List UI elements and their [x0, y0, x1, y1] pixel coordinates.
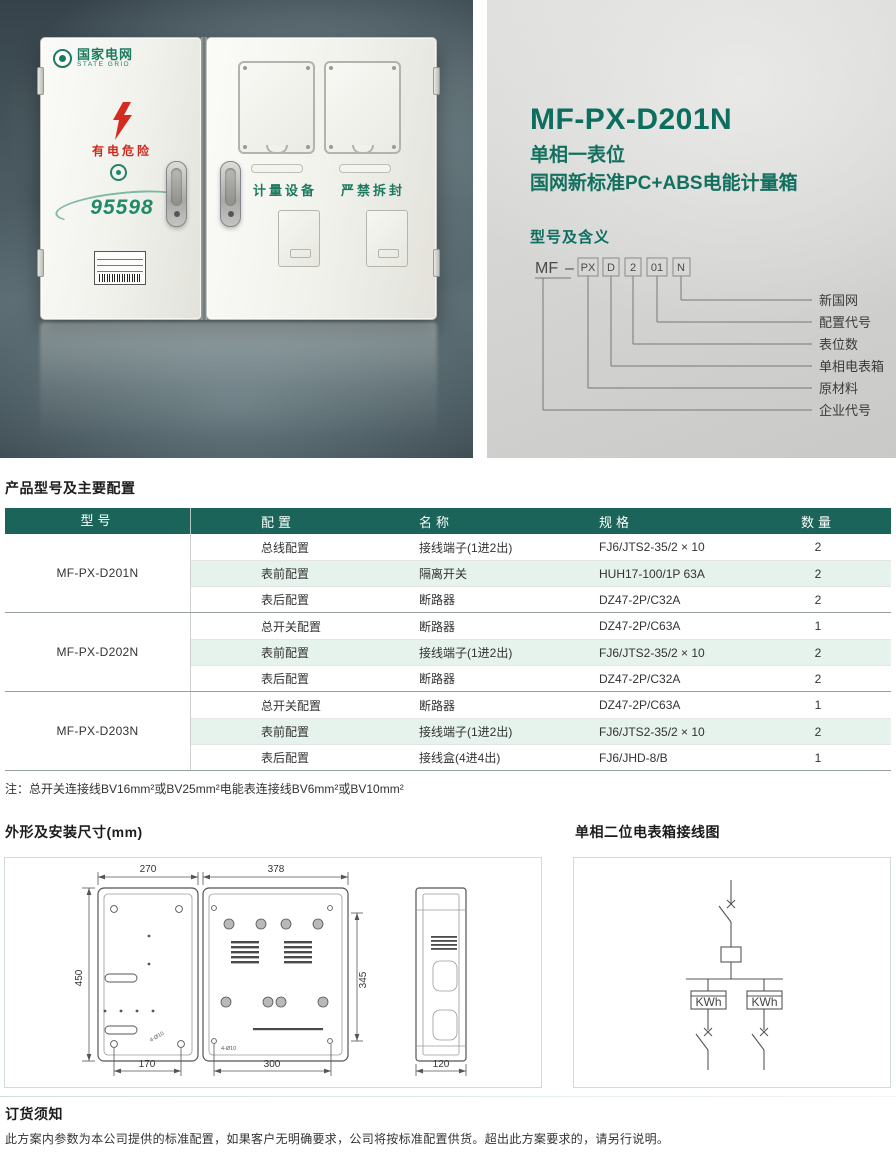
table-group: MF-PX-D201N总线配置接线端子(1进2出)FJ6/JTS2-35/2 ×… — [5, 534, 891, 612]
table-row: 总开关配置断路器DZ47-2P/C63A1 — [191, 692, 891, 718]
dim-inner-height: 345 — [358, 971, 369, 988]
table-cell: 2 — [745, 540, 891, 554]
table-cell: 接线盒(4进4出) — [415, 749, 595, 766]
header-model: 型号 — [5, 508, 191, 534]
table-cell: 2 — [745, 646, 891, 660]
logo-text-cn: 国家电网 — [77, 48, 133, 61]
meter-label-2: KWh — [751, 995, 777, 1009]
meter-box-right-door: 计量设备 严禁拆封 — [206, 37, 437, 320]
table-cell: 断路器 — [415, 591, 595, 608]
meter-box: 国家电网 STATE GRID 有电危险 95598 — [40, 37, 437, 320]
header-spec: 规格 — [595, 512, 745, 531]
config-table-header: 型号 配置 名称 规格 数量 — [5, 508, 891, 534]
model-cell: MF-PX-D203N — [5, 692, 191, 770]
config-table: 型号 配置 名称 规格 数量 MF-PX-D201N总线配置接线端子(1进2出)… — [5, 508, 891, 771]
product-info-panel: MF-PX-D201N 单相一表位 国网新标准PC+ABS电能计量箱 型号及含义… — [487, 0, 896, 458]
hinge — [433, 67, 440, 95]
table-cell: 总开关配置 — [191, 618, 415, 635]
subtitle-line1: 单相一表位 — [530, 142, 798, 170]
table-cell: FJ6/JTS2-35/2 × 10 — [595, 646, 745, 660]
config-section-title: 产品型号及主要配置 — [5, 478, 136, 498]
model-cell: MF-PX-D201N — [5, 534, 191, 612]
code-label-1: 配置代号 — [819, 315, 871, 330]
model-meaning-title: 型号及含义 — [530, 226, 610, 247]
warning-text: 有电危险 — [41, 142, 203, 159]
catalog-page: 国家电网 STATE GRID 有电危险 95598 — [0, 0, 896, 1153]
table-cell: DZ47-2P/C32A — [595, 672, 745, 686]
door-label-left: 计量设备 — [253, 180, 317, 199]
table-cell: 隔离开关 — [415, 565, 595, 582]
table-cell: 表前配置 — [191, 565, 415, 582]
dim-front-width-left: 270 — [140, 864, 157, 875]
header-config: 配置 — [191, 512, 415, 531]
hinge — [37, 249, 44, 277]
order-section-body: 此方案内参数为本公司提供的标准配置，如果客户无明确要求，公司将按标准配置供货。超… — [5, 1130, 669, 1147]
table-row: 表前配置隔离开关HUH17-100/1P 63A2 — [191, 560, 891, 586]
code-box-1: D — [607, 262, 615, 274]
table-row: 表后配置接线盒(4进4出)FJ6/JHD-8/B1 — [191, 744, 891, 770]
model-cell: MF-PX-D202N — [5, 613, 191, 691]
meter-label-1: KWh — [695, 995, 721, 1009]
table-cell: 表后配置 — [191, 749, 415, 766]
product-subtitle: 单相一表位 国网新标准PC+ABS电能计量箱 — [530, 142, 798, 198]
table-cell: DZ47-2P/C63A — [595, 698, 745, 712]
table-cell: DZ47-2P/C32A — [595, 593, 745, 607]
table-cell: 接线端子(1进2出) — [415, 539, 595, 556]
table-cell: 表前配置 — [191, 644, 415, 661]
table-cell: 断路器 — [415, 697, 595, 714]
code-box-0: PX — [581, 262, 596, 274]
lightning-bolt-icon — [109, 102, 135, 140]
code-label-5: 企业代号 — [819, 403, 871, 418]
code-label-4: 原材料 — [819, 381, 858, 396]
meter-window — [324, 61, 401, 154]
group-rows: 总开关配置断路器DZ47-2P/C63A1表前配置接线端子(1进2出)FJ6/J… — [191, 613, 891, 691]
code-prefix: MF — [535, 260, 558, 277]
product-model-title: MF-PX-D201N — [530, 103, 732, 137]
dim-front-width-right: 378 — [268, 864, 285, 875]
table-cell: 2 — [745, 567, 891, 581]
nameplate-sticker — [94, 251, 146, 285]
logo-text-en: STATE GRID — [77, 61, 133, 69]
table-cell: 1 — [745, 698, 891, 712]
code-label-0: 新国网 — [819, 293, 858, 308]
header-qty: 数量 — [745, 512, 891, 531]
dimension-drawing: 270 378 450 345 170 300 120 4-Ø10 4-Ø10 — [5, 858, 541, 1087]
table-group: MF-PX-D203N总开关配置断路器DZ47-2P/C63A1表前配置接线端子… — [5, 691, 891, 770]
label-slot — [251, 164, 303, 173]
access-cover — [366, 210, 408, 267]
table-group: MF-PX-D202N总开关配置断路器DZ47-2P/C63A1表前配置接线端子… — [5, 612, 891, 691]
table-row: 表后配置断路器DZ47-2P/C32A2 — [191, 586, 891, 612]
access-cover — [278, 210, 320, 267]
hinge — [37, 67, 44, 95]
table-cell: 表后配置 — [191, 670, 415, 687]
state-grid-logo: 国家电网 STATE GRID — [53, 48, 133, 69]
product-photo: 国家电网 STATE GRID 有电危险 95598 — [0, 0, 473, 458]
table-cell: 表前配置 — [191, 723, 415, 740]
dimensions-panel: 270 378 450 345 170 300 120 4-Ø10 4-Ø10 — [4, 857, 542, 1088]
table-cell: 1 — [745, 619, 891, 633]
wiring-diagram: KWh KWh — [574, 858, 890, 1087]
dim-bottom-right: 300 — [264, 1059, 281, 1070]
inspection-seal-icon — [110, 164, 127, 181]
barcode-icon — [99, 274, 141, 282]
code-box-4: N — [677, 262, 685, 274]
table-cell: HUH17-100/1P 63A — [595, 567, 745, 581]
wiring-panel: KWh KWh — [573, 857, 891, 1088]
dim-depth: 120 — [433, 1059, 450, 1070]
state-grid-emblem-icon — [53, 49, 72, 68]
dimensions-section-title: 外形及安装尺寸(mm) — [5, 822, 143, 842]
table-row: 总线配置接线端子(1进2出)FJ6/JTS2-35/2 × 102 — [191, 534, 891, 560]
order-section-title: 订货须知 — [5, 1104, 63, 1124]
hole-note-right: 4-Ø10 — [221, 1046, 236, 1052]
label-slot — [339, 164, 391, 173]
model-code-diagram: MF – PX D 2 01 N 新国网 配置代号 表位数 单相电表箱 原材料 … — [527, 252, 893, 424]
subtitle-line2: 国网新标准PC+ABS电能计量箱 — [530, 170, 798, 198]
left-door-lock-handle — [166, 161, 187, 227]
table-cell: 总线配置 — [191, 539, 415, 556]
group-rows: 总线配置接线端子(1进2出)FJ6/JTS2-35/2 × 102表前配置隔离开… — [191, 534, 891, 612]
dim-height: 450 — [74, 969, 85, 986]
table-note: 注：总开关连接线BV16mm²或BV25mm²电能表连接线BV6mm²或BV10… — [5, 780, 404, 797]
section-divider — [0, 1096, 896, 1097]
wiring-section-title: 单相二位电表箱接线图 — [575, 822, 720, 842]
table-cell: 断路器 — [415, 618, 595, 635]
box-reflection — [40, 322, 437, 440]
config-table-body: MF-PX-D201N总线配置接线端子(1进2出)FJ6/JTS2-35/2 ×… — [5, 534, 891, 770]
code-box-2: 2 — [630, 262, 636, 274]
table-row: 表后配置断路器DZ47-2P/C32A2 — [191, 665, 891, 691]
hole-note-left: 4-Ø10 — [149, 1031, 165, 1044]
right-door-lock-handle — [220, 161, 241, 227]
table-cell: 接线端子(1进2出) — [415, 723, 595, 740]
code-label-3: 单相电表箱 — [819, 359, 884, 374]
table-cell: FJ6/JTS2-35/2 × 10 — [595, 540, 745, 554]
group-rows: 总开关配置断路器DZ47-2P/C63A1表前配置接线端子(1进2出)FJ6/J… — [191, 692, 891, 770]
table-cell: 2 — [745, 672, 891, 686]
code-label-2: 表位数 — [819, 337, 858, 352]
table-cell: 接线端子(1进2出) — [415, 644, 595, 661]
hinge — [433, 249, 440, 277]
header-name: 名称 — [415, 512, 595, 531]
code-dash: – — [565, 260, 574, 277]
table-cell: 表后配置 — [191, 591, 415, 608]
dim-bottom-left: 170 — [139, 1059, 156, 1070]
table-cell: FJ6/JHD-8/B — [595, 751, 745, 765]
table-cell: 2 — [745, 593, 891, 607]
table-cell: DZ47-2P/C63A — [595, 619, 745, 633]
meter-box-left-door: 国家电网 STATE GRID 有电危险 95598 — [40, 37, 202, 320]
table-row: 总开关配置断路器DZ47-2P/C63A1 — [191, 613, 891, 639]
meter-window — [238, 61, 315, 154]
door-label-right: 严禁拆封 — [341, 180, 405, 199]
code-box-3: 01 — [651, 262, 663, 274]
table-row: 表前配置接线端子(1进2出)FJ6/JTS2-35/2 × 102 — [191, 639, 891, 665]
table-cell: 1 — [745, 751, 891, 765]
table-cell: 2 — [745, 725, 891, 739]
table-row: 表前配置接线端子(1进2出)FJ6/JTS2-35/2 × 102 — [191, 718, 891, 744]
table-cell: 总开关配置 — [191, 697, 415, 714]
table-cell: FJ6/JTS2-35/2 × 10 — [595, 725, 745, 739]
table-cell: 断路器 — [415, 670, 595, 687]
